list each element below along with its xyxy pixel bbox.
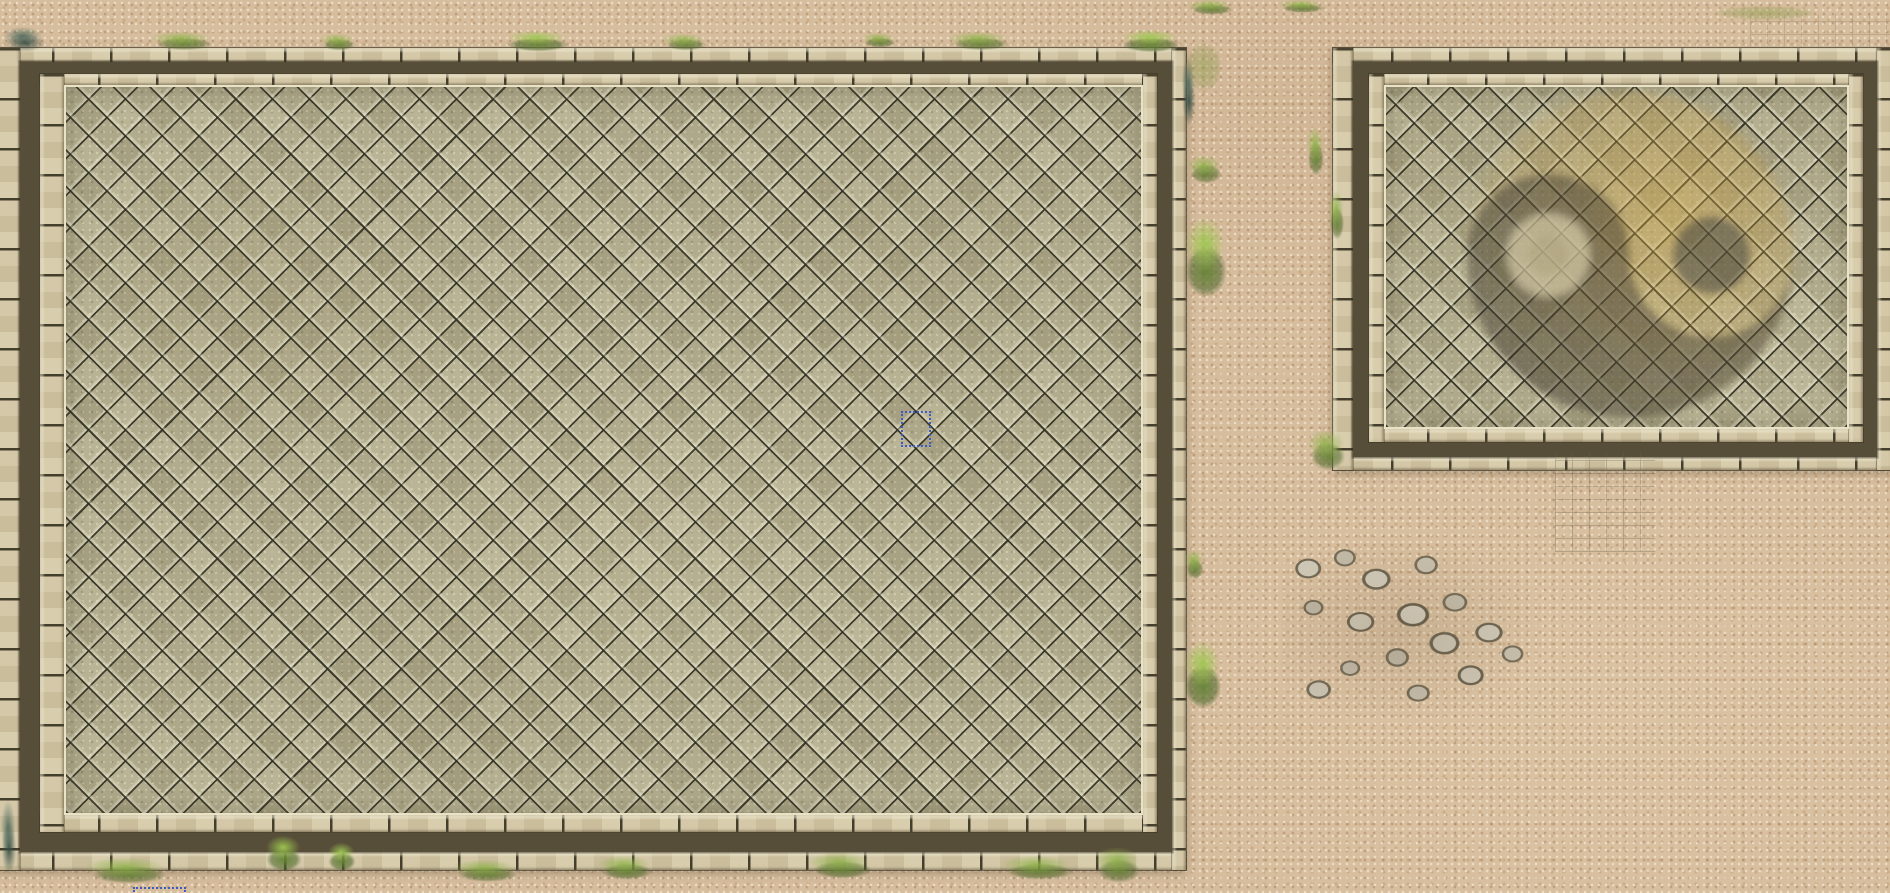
grass-tuft: [660, 34, 712, 52]
grass-tuft: [805, 853, 880, 881]
grass-tuft: [860, 33, 900, 49]
outer-brick-course-left: [0, 48, 20, 870]
outer-brick-course-right: [1877, 48, 1890, 470]
grass-tuft: [1185, 0, 1239, 16]
inner-brick-course-bottom: [1369, 429, 1863, 442]
grass-tuft: [0, 26, 50, 54]
rubble-stones: [1282, 540, 1544, 718]
inner-brick-course-top: [40, 74, 1157, 85]
outer-brick-course-right: [1172, 48, 1186, 870]
grass-tuft: [1115, 30, 1187, 54]
grass-tuft: [1186, 156, 1226, 186]
grass-tuft: [1180, 218, 1232, 304]
moss-patch: [1700, 4, 1830, 22]
grass-tuft: [262, 836, 306, 874]
outer-brick-course-top: [1333, 48, 1890, 62]
grass-tuft: [318, 34, 360, 52]
grass-tuft: [945, 32, 1017, 52]
grass-tuft: [500, 31, 576, 53]
grass-tuft: [0, 798, 18, 882]
grass-tuft: [1276, 0, 1330, 14]
grass-tuft: [998, 856, 1082, 882]
grass-tuft: [1180, 642, 1226, 714]
large-courtyard: [0, 48, 1186, 870]
brick-debris-patch: [1555, 452, 1655, 552]
inner-brick-course-bottom: [40, 815, 1157, 832]
selection-marquee-partial[interactable]: [133, 887, 186, 893]
battlemap-canvas[interactable]: [0, 0, 1890, 893]
yinyang-mosaic: [1462, 88, 1802, 428]
yang-light-dot-center: [1529, 235, 1569, 275]
grass-tuft: [325, 843, 359, 873]
grass-tuft: [595, 856, 659, 882]
inner-brick-course-left: [40, 74, 64, 832]
inner-brick-course-left: [1369, 74, 1384, 442]
grass-tuft: [1306, 430, 1350, 474]
inner-brick-course-right: [1143, 74, 1157, 832]
diamond-tile-floor: [64, 85, 1143, 815]
inner-brick-course-top: [1369, 74, 1863, 85]
grass-tuft: [450, 860, 525, 884]
grass-tuft: [1306, 128, 1326, 180]
outer-brick-course-left: [1333, 48, 1353, 470]
grass-tuft: [1181, 56, 1197, 132]
grass-tuft: [148, 32, 220, 52]
inner-brick-course-right: [1849, 74, 1863, 442]
grass-tuft: [1092, 848, 1146, 886]
grass-tuft: [1328, 192, 1346, 244]
grass-tuft: [1184, 550, 1206, 582]
selection-marquee[interactable]: [901, 411, 931, 447]
yin-dark-dot: [1673, 216, 1751, 294]
grass-tuft: [82, 858, 177, 886]
